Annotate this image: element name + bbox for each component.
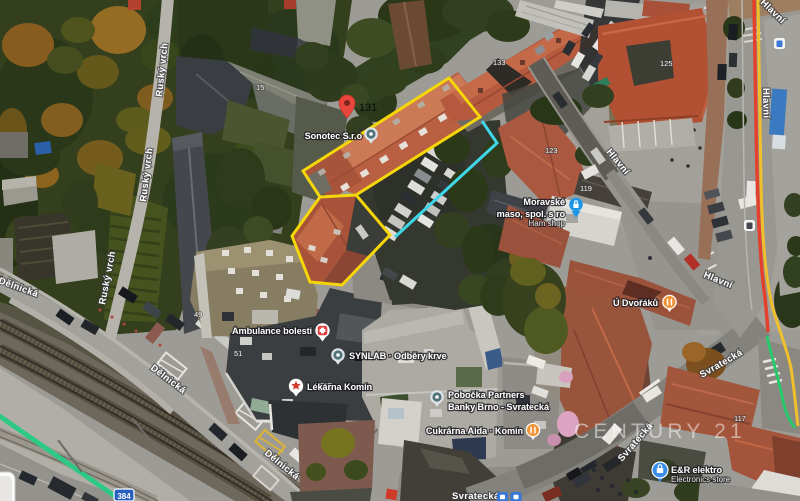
svg-text:SYNLAB · Odběry krve: SYNLAB · Odběry krve <box>349 351 447 361</box>
svg-text:E&R elektro: E&R elektro <box>671 465 722 475</box>
svg-text:51: 51 <box>234 349 242 358</box>
svg-text:Pobočka Partners: Pobočka Partners <box>448 390 525 400</box>
svg-text:Cukrárna Aida · Komín: Cukrárna Aida · Komín <box>426 426 524 436</box>
svg-text:133: 133 <box>493 58 506 67</box>
svg-text:CENTURY 21: CENTURY 21 <box>574 420 746 443</box>
svg-text:Sonotec S.r.o: Sonotec S.r.o <box>305 131 363 141</box>
svg-text:125: 125 <box>660 59 673 68</box>
svg-text:Ambulance bolesti: Ambulance bolesti <box>232 326 312 336</box>
svg-text:49: 49 <box>194 310 202 319</box>
svg-text:maso, spol. s ro: maso, spol. s ro <box>497 209 566 219</box>
svg-text:Ú Dvořáků: Ú Dvořáků <box>613 297 658 308</box>
svg-text:15: 15 <box>256 83 264 92</box>
svg-text:Moravské: Moravské <box>523 197 565 207</box>
svg-text:131: 131 <box>359 102 377 114</box>
svg-text:123: 123 <box>545 146 558 155</box>
svg-text:Banky Brno - Svratecká: Banky Brno - Svratecká <box>448 402 550 412</box>
svg-text:Svratecká: Svratecká <box>452 491 500 501</box>
svg-text:Lékárna Komín: Lékárna Komín <box>307 382 373 392</box>
svg-text:Electronics store: Electronics store <box>671 475 731 484</box>
svg-text:384: 384 <box>117 492 131 501</box>
svg-text:Hlavní: Hlavní <box>760 88 772 119</box>
svg-text:Ham shop: Ham shop <box>529 219 566 228</box>
svg-text:119: 119 <box>580 184 592 193</box>
